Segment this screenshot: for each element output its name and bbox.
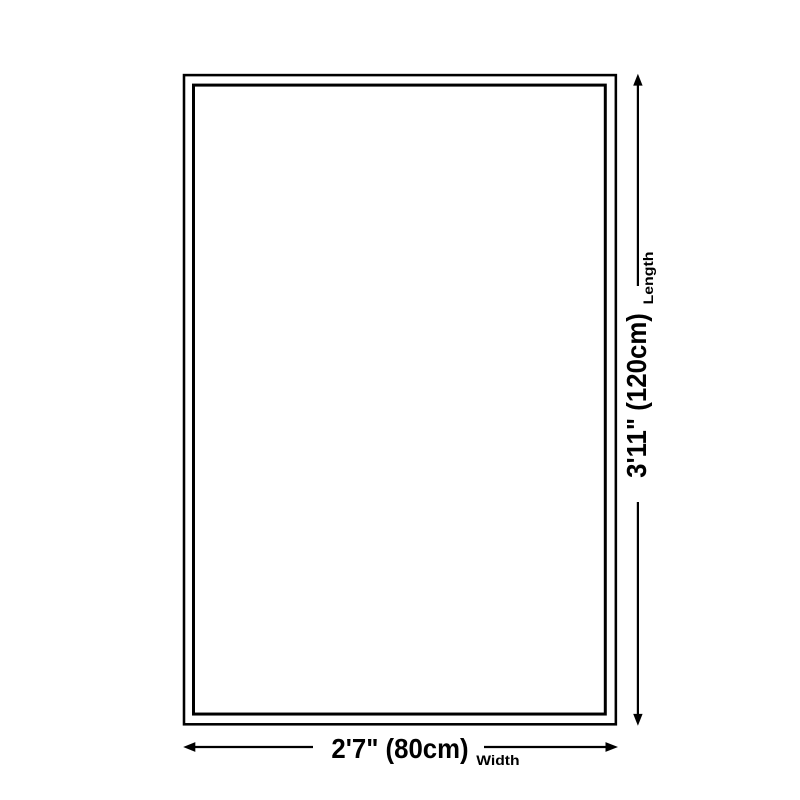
svg-text:Length: Length: [641, 252, 657, 305]
svg-text:2'7" (80cm): 2'7" (80cm): [331, 733, 468, 764]
svg-text:Width: Width: [476, 753, 519, 768]
svg-text:3'11" (120cm): 3'11" (120cm): [621, 313, 652, 478]
